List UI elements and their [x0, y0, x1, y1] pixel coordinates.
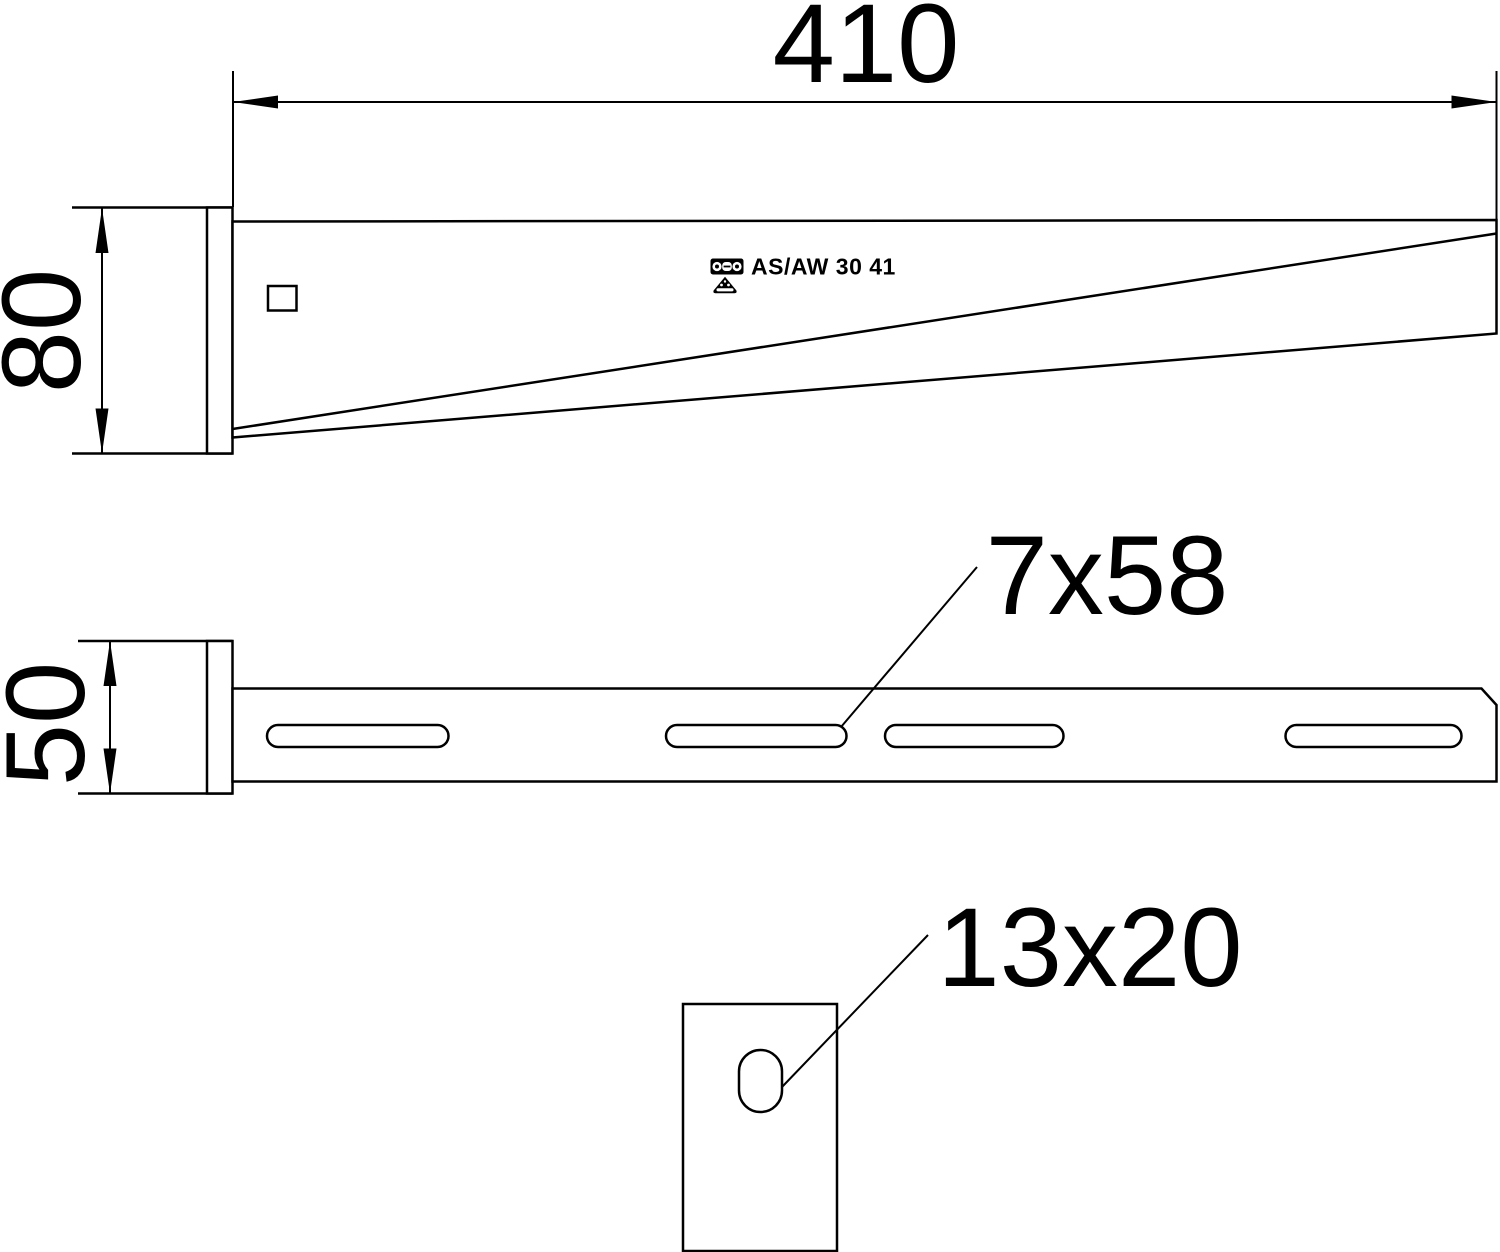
dim-80-label: 80 [0, 269, 98, 394]
certification-triangle-icon [712, 276, 738, 294]
slot-size-label: 7x58 [986, 520, 1229, 632]
end-plate-view [683, 935, 928, 1251]
slot-2 [666, 725, 847, 747]
technical-drawing-page: 410 80 50 7x58 13x20 AS/AW 30 41 [0, 0, 1500, 1252]
dim-410-arrow-left [233, 96, 278, 109]
product-marking-text: AS/AW 30 41 [751, 254, 896, 281]
dim-80-arrow-top [96, 208, 109, 253]
drawing-linework [0, 0, 1500, 1252]
dim-410-label: 410 [773, 0, 960, 100]
wall-plate-side [207, 208, 233, 454]
square-hole [268, 286, 297, 311]
slot-4 [1286, 725, 1462, 747]
dim-410-arrow-right [1452, 96, 1497, 109]
plan-view [78, 567, 1497, 794]
slot-1 [267, 725, 449, 747]
oblong-hole [739, 1050, 782, 1112]
wall-plate-plan [207, 641, 233, 794]
end-plate-outline [683, 1004, 837, 1251]
slot-3 [885, 725, 1064, 747]
hole-size-label: 13x20 [937, 892, 1242, 1004]
obo-logo-icon [710, 258, 744, 275]
dim-50-label: 50 [0, 662, 102, 787]
dim-80-arrow-bottom [96, 409, 109, 454]
